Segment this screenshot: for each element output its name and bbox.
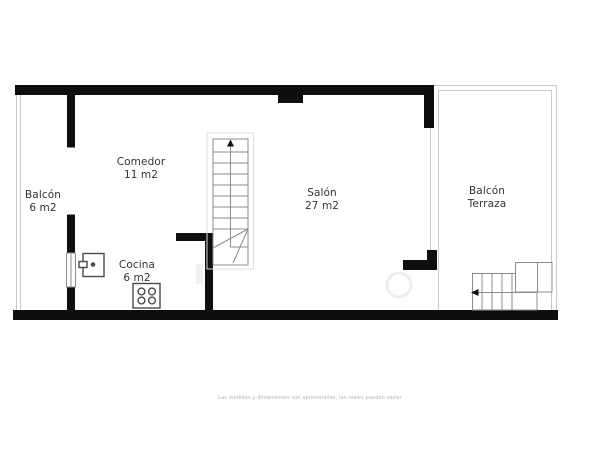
room-label-comedor: Comedor 11 m2 xyxy=(117,156,166,181)
room-area: 27 m2 xyxy=(305,200,339,213)
room-area: Terraza xyxy=(468,198,507,211)
disclaimer-text: Las medidas y dimensiones son aproximada… xyxy=(218,395,402,401)
floor-plan-drawing xyxy=(0,0,600,450)
interior-stairs-icon xyxy=(207,133,254,269)
room-area: 6 m2 xyxy=(25,202,61,215)
room-label-balcon: Balcón 6 m2 xyxy=(25,189,61,214)
room-label-balcon-terraza: Balcón Terraza xyxy=(468,185,507,210)
up-arrow-icon xyxy=(227,140,234,147)
room-label-cocina: Cocina 6 m2 xyxy=(119,259,155,284)
stove-icon xyxy=(133,284,160,309)
door-opening xyxy=(67,148,75,215)
room-name: Cocina xyxy=(119,259,155,272)
room-area: 11 m2 xyxy=(117,169,166,182)
exterior-stairs-icon xyxy=(471,263,552,311)
balcony-railing xyxy=(17,95,21,310)
room-name: Comedor xyxy=(117,156,166,169)
room-name: Balcón xyxy=(25,189,61,202)
room-area: 6 m2 xyxy=(119,272,155,285)
room-label-salon: Salón 27 m2 xyxy=(305,187,339,212)
room-name: Salón xyxy=(305,187,339,200)
floor-plan: Balcón 6 m2 Comedor 11 m2 Cocina 6 m2 Sa… xyxy=(0,0,600,450)
window-symbol xyxy=(67,253,76,287)
room-name: Balcón xyxy=(468,185,507,198)
sink-icon xyxy=(79,254,104,277)
